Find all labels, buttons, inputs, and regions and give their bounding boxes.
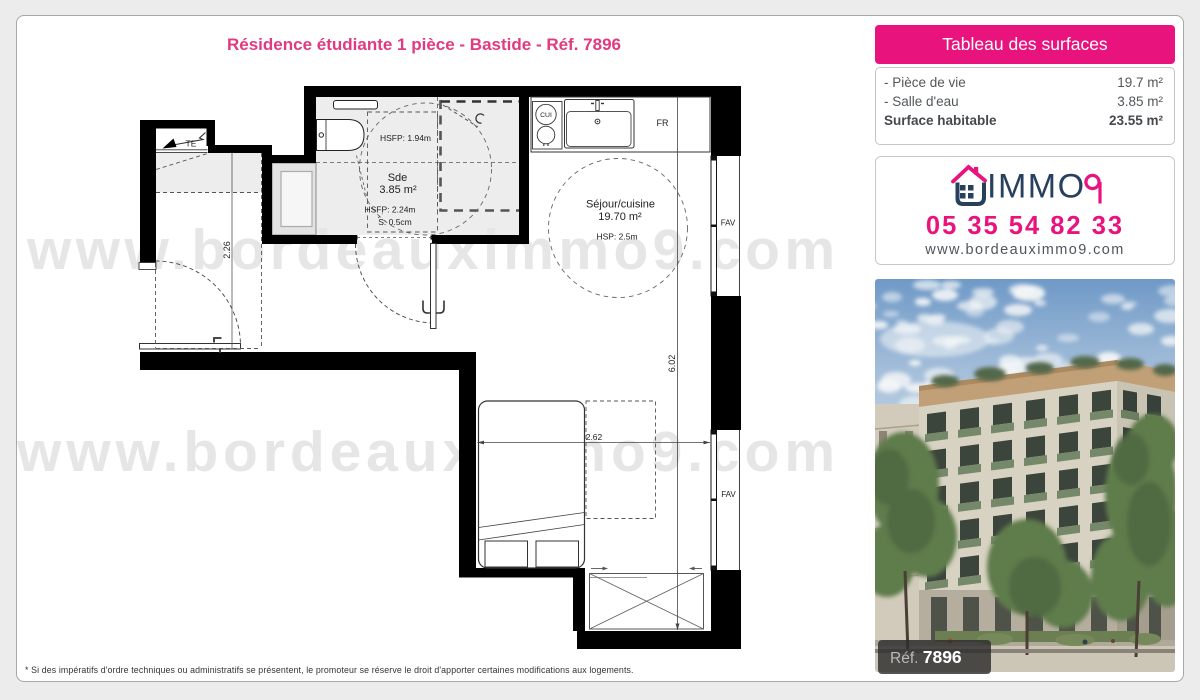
svg-text:Séjour/cuisine: Séjour/cuisine <box>586 199 655 211</box>
svg-text:IMMO: IMMO <box>987 168 1086 206</box>
svg-text:2.26: 2.26 <box>222 241 232 259</box>
svg-text:FAV: FAV <box>721 490 736 499</box>
svg-text:Sde: Sde <box>388 172 408 184</box>
svg-text:HSFP: 1.94m: HSFP: 1.94m <box>380 133 431 143</box>
svg-text:S: 0.5cm: S: 0.5cm <box>378 217 412 227</box>
svg-text:CUI: CUI <box>540 112 552 119</box>
svg-text:2.62: 2.62 <box>586 432 603 442</box>
svg-text:HSFP: 2.24m: HSFP: 2.24m <box>364 205 415 215</box>
svg-text:HSP: 2.5m: HSP: 2.5m <box>596 232 637 242</box>
svg-text:TE: TE <box>186 139 197 149</box>
svg-text:FR: FR <box>657 118 669 128</box>
svg-text:6.02: 6.02 <box>667 355 677 373</box>
svg-text:3.85 m²: 3.85 m² <box>379 184 417 196</box>
svg-text:FAV: FAV <box>721 219 736 228</box>
svg-text:19.70 m²: 19.70 m² <box>598 211 642 223</box>
